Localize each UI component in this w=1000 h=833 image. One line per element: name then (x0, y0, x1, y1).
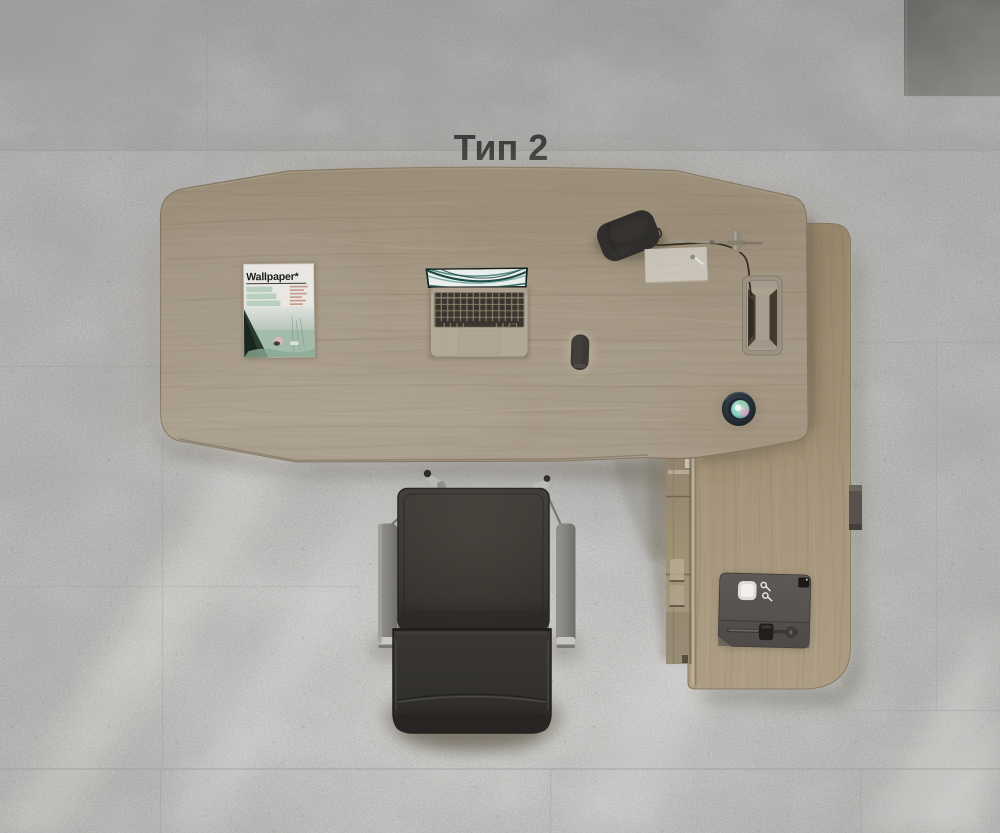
svg-text:Wallpaper*: Wallpaper* (246, 271, 300, 283)
